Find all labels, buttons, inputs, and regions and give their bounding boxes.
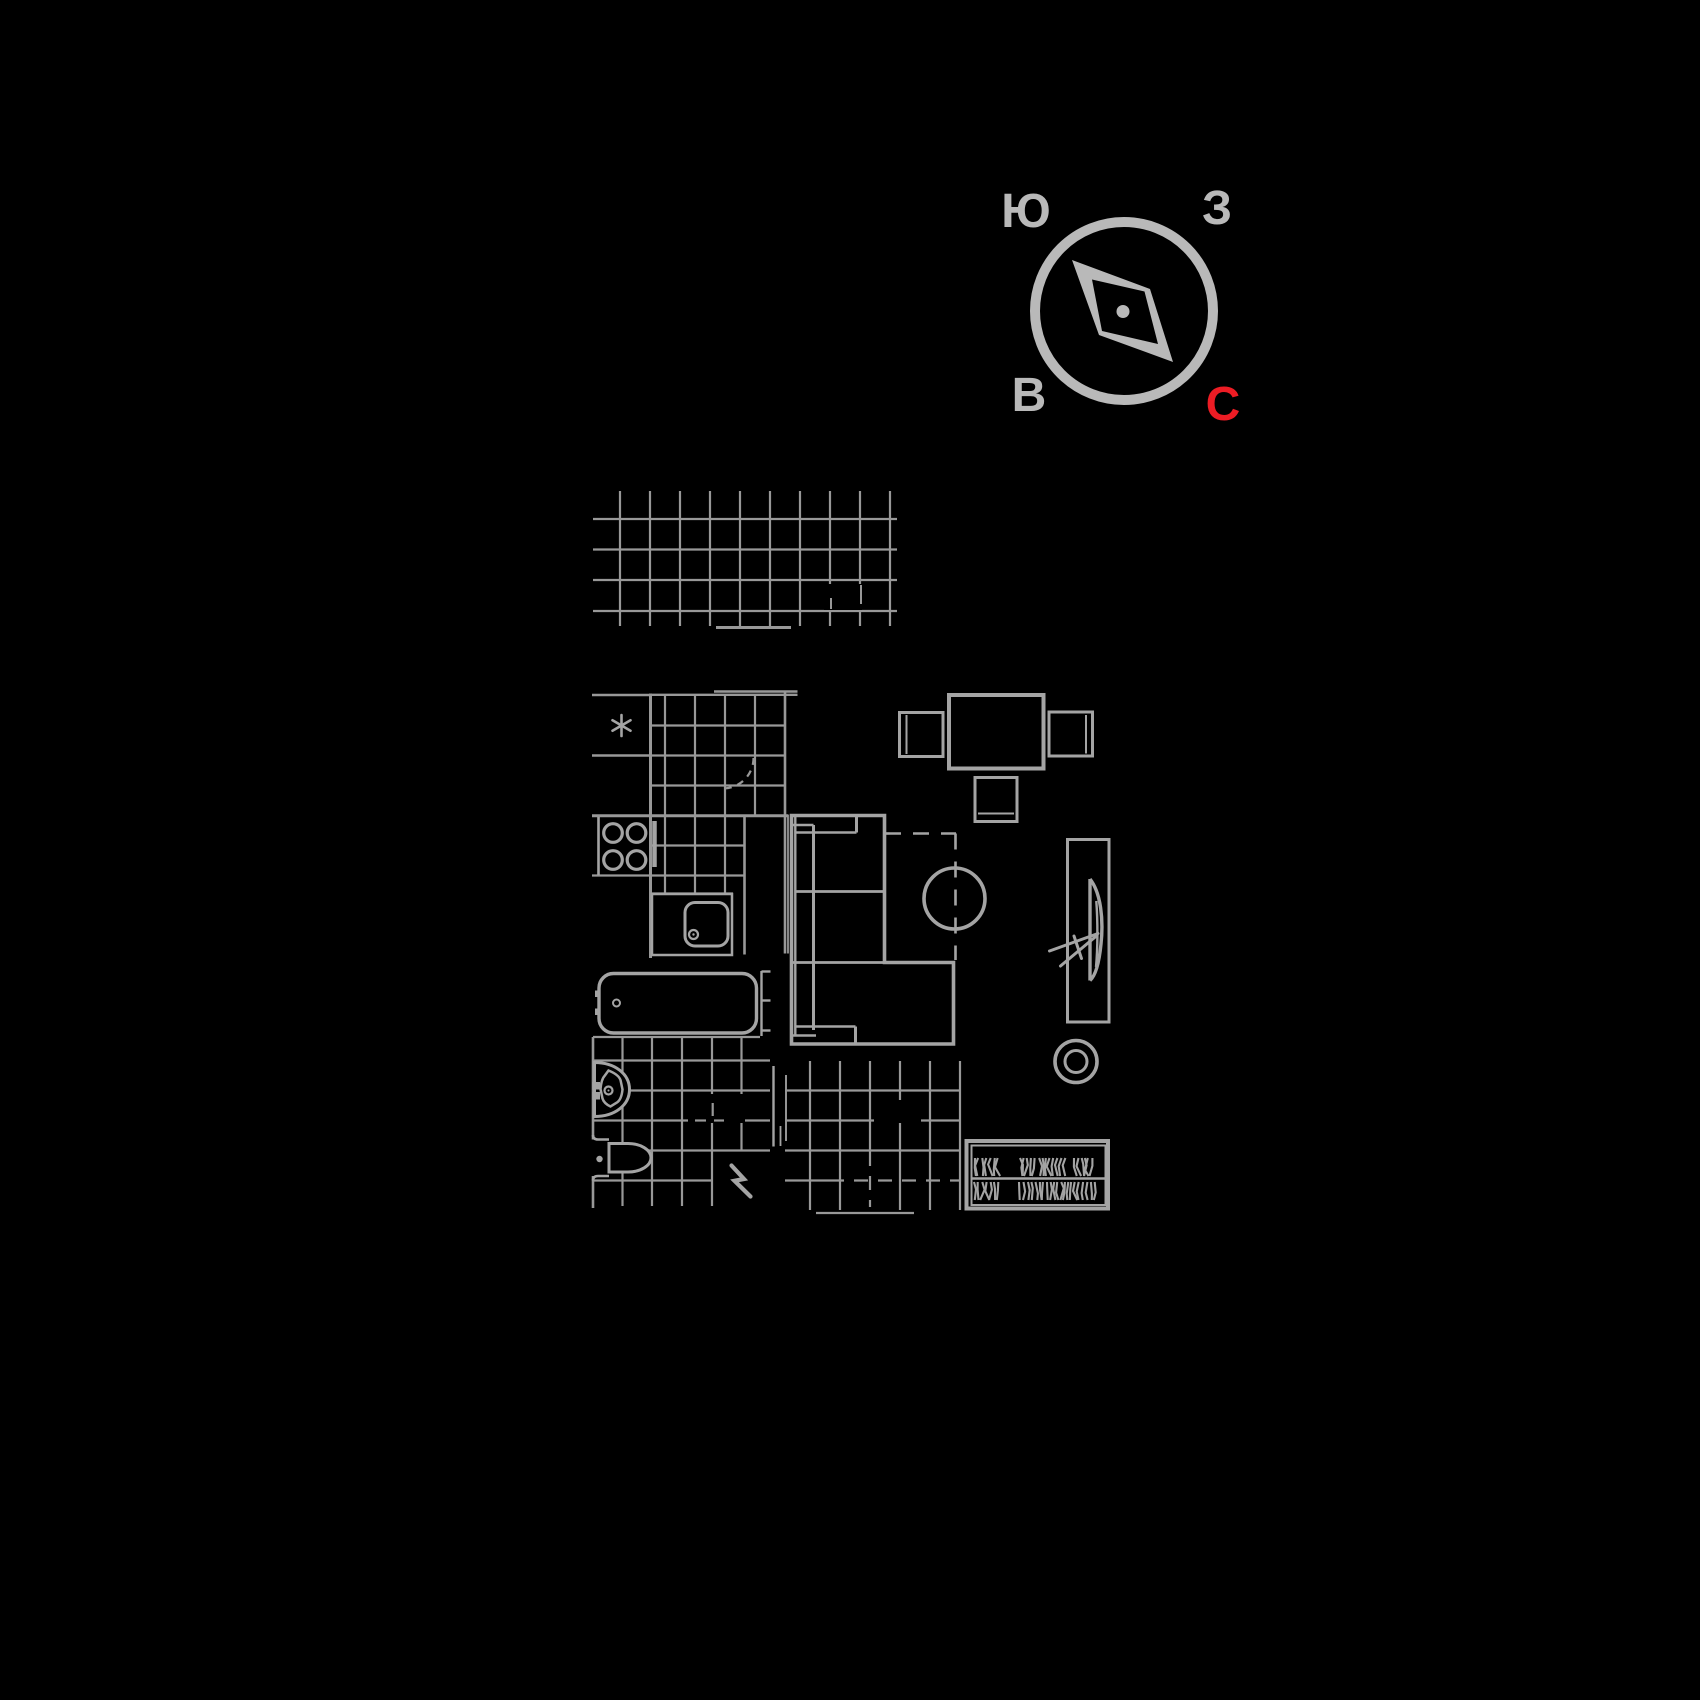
svg-text:З: З	[1202, 182, 1232, 235]
svg-text:В: В	[1012, 369, 1047, 422]
svg-text:Ю: Ю	[1001, 185, 1051, 238]
svg-text:С: С	[1206, 378, 1241, 431]
